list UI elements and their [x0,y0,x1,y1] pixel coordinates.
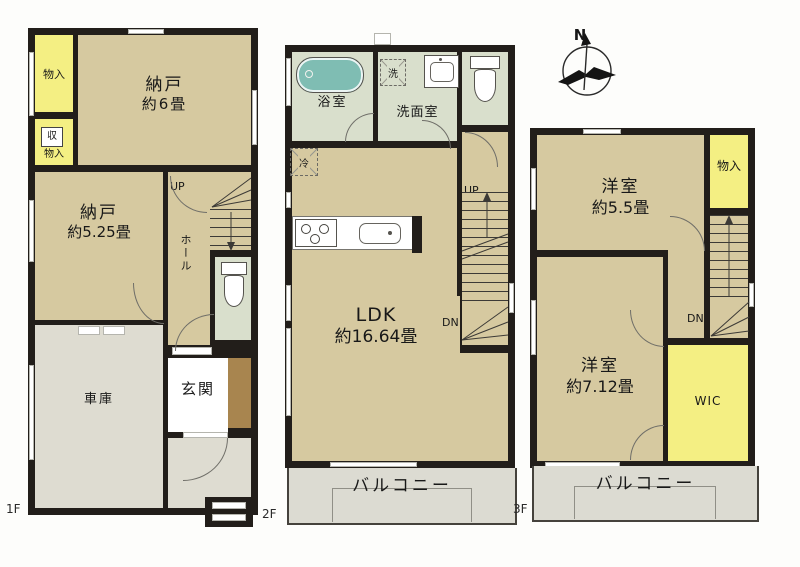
bath-label: 浴室 [292,95,373,110]
fridge-box: 冷 [290,148,318,176]
sink-faucet [439,58,442,61]
bathtub-drain [305,70,313,78]
floor-2-tag: 2F [262,507,277,521]
stairs-2f-marks [460,187,510,355]
compass-north-label: N [570,26,590,44]
toilet-1f-tank [221,262,247,275]
closet-label: 物入 [35,148,73,161]
window-1f-left-2 [29,200,34,262]
toilet-1f-bowl [224,275,244,307]
entrance-step-1 [212,502,246,509]
yoshitsu-712-label: 洋室 約7.12畳 [537,348,663,404]
balcony-2f: バルコニー [287,468,517,525]
burner-3 [310,234,320,244]
storage-3f-label: 物入 [710,159,748,174]
genkan-step [228,358,251,428]
nando-525-size: 約5.25畳 [67,223,130,241]
storage-1f-top-label: 物入 [35,68,73,82]
balcony-2f-label: バルコニー [289,476,515,496]
window-3f-left-1 [531,168,536,210]
nando-525-label: 納戸 約5.25畳 [35,196,163,248]
floor-1-tag: 1F [6,502,21,516]
stairs-3f-marks [707,212,753,340]
window-2f-left-2 [286,285,291,321]
genkan-label: 玄関 [168,380,228,398]
vent-door-mark-2f [374,33,391,45]
floor-plan-page: 物入 収 物入 納戸 約6畳 納戸 約5.25畳 ホール UP 玄関 車庫 [0,0,800,567]
sink-bowl [430,62,454,82]
yoshitsu-55-size: 約5.5畳 [592,198,649,217]
burner-2 [319,224,329,234]
balcony-3f: バルコニー [532,466,759,522]
window-2f-left-1 [286,192,291,208]
nando-6-size: 約6畳 [142,95,188,113]
closet-box-label: 収 [41,127,63,147]
stairs-1f-arrow [210,172,255,254]
garage-label: 車庫 [35,392,163,408]
balcony-door-2f [330,462,417,467]
window-2f-left-bath [286,58,291,106]
kitchen-sink [359,223,401,244]
yoshitsu-712-size: 約7.12畳 [566,377,634,396]
yoshitsu-55-name: 洋室 [602,177,640,197]
washroom-sink [424,55,459,88]
kitchen-faucet [388,231,392,235]
window-3f-top [583,129,621,134]
ldk-name: LDK [356,304,397,327]
washroom-label: 洗面室 [378,105,457,120]
yoshitsu-55-label: 洋室 約5.5畳 [537,170,704,224]
ldk-label: LDK 約16.64畳 [292,297,460,355]
entrance-step-2 [212,514,246,521]
washer-box: 洗 [380,59,406,86]
compass-icon [552,24,642,104]
window-1f-left-3 [29,365,34,460]
nando-6-name: 納戸 [146,75,184,95]
window-3f-left-2 [531,300,536,355]
garage-door-mark-1 [78,326,100,335]
floor-1-plan: 物入 収 物入 納戸 約6畳 納戸 約5.25畳 ホール UP 玄関 車庫 [28,28,258,515]
room-garage [35,325,163,508]
floor-3-tag: 3F [513,502,528,516]
yoshitsu-712-name: 洋室 [581,356,619,376]
fridge-label: 冷 [298,155,310,170]
room-ldk-right [460,351,508,461]
wic-label: WIC [668,394,748,409]
window-1f-right-1 [252,90,257,145]
nando-6-label: 納戸 約6畳 [78,68,251,120]
window-1f-top [128,29,164,34]
kitchen-wall-stub [412,216,422,253]
burner-1 [301,224,311,234]
hall-label: ホール [176,234,192,314]
entrance-steps [205,497,253,527]
toilet-2f-bowl [474,69,496,102]
window-2f-left-3 [286,328,291,416]
toilet-2f-tank [470,56,500,69]
ldk-size: 約16.64畳 [335,327,418,347]
washer-label: 洗 [387,65,399,80]
window-1f-left-1 [29,52,34,116]
kitchen-counter [292,216,414,250]
balcony-3f-label: バルコニー [534,474,757,494]
nando-525-name: 納戸 [80,203,118,223]
garage-door-mark-2 [103,326,125,335]
stove [295,219,337,247]
